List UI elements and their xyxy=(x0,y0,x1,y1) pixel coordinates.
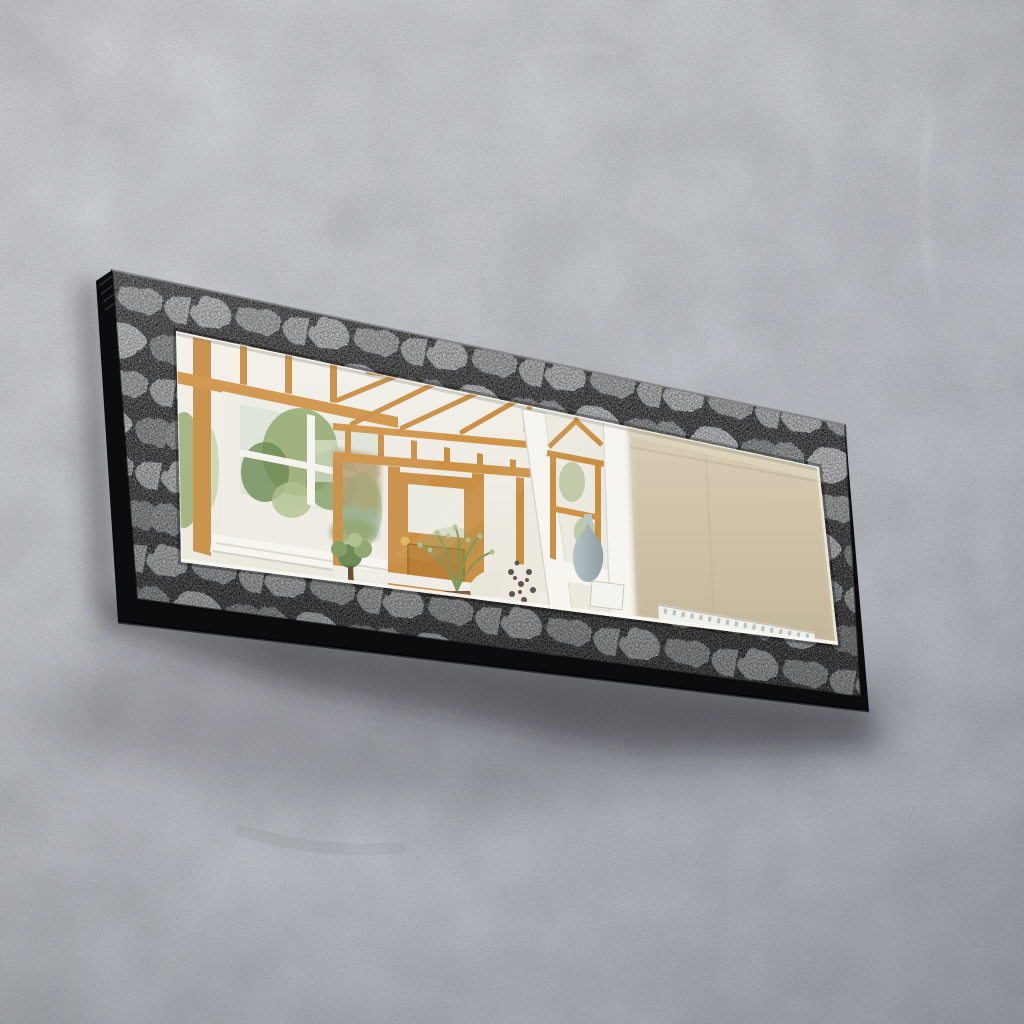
product-photo-stage: Decorative wall mirror with grey stone-p… xyxy=(0,0,1024,1024)
wall-vignette xyxy=(0,0,1024,1024)
product-photo: Decorative wall mirror with grey stone-p… xyxy=(0,0,1024,1024)
